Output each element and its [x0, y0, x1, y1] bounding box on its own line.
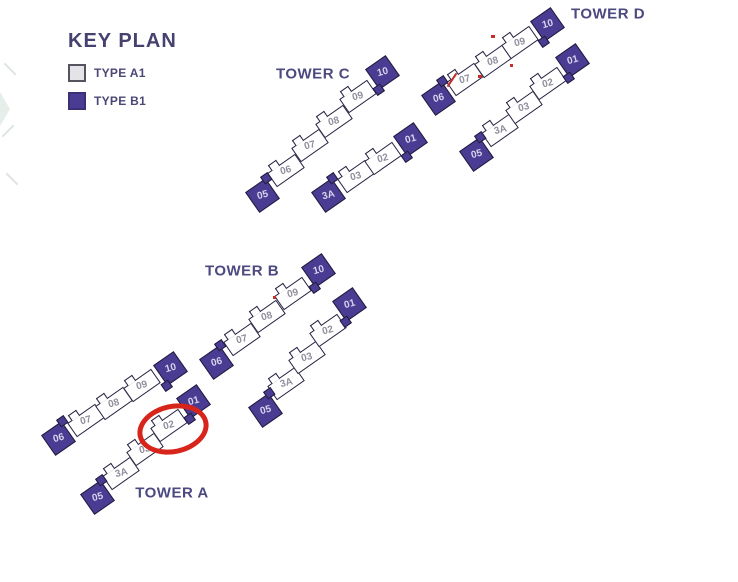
unit-number: 3A [114, 467, 129, 480]
legend-item-label: TYPE B1 [94, 94, 146, 108]
unit-number: 08 [260, 310, 273, 323]
unit-number: 09 [135, 379, 148, 392]
unit-number: 02 [541, 77, 554, 90]
unit-number: 01 [404, 133, 417, 146]
unit-number: 07 [303, 140, 316, 153]
unit-number: 06 [209, 356, 222, 369]
unit-number: 3A [493, 124, 508, 137]
unit-number: 06 [279, 164, 292, 177]
unit-number: 03 [349, 170, 362, 183]
legend-item-label: TYPE A1 [94, 66, 146, 80]
unit-number: 10 [311, 264, 324, 277]
type-b1-swatch [68, 92, 86, 110]
unit-number: 05 [255, 189, 268, 202]
unit-number: 08 [107, 397, 120, 410]
unit-number: 01 [565, 54, 578, 67]
tower-b-label: TOWER B [205, 263, 279, 280]
key-plan-canvas: KEY PLAN TYPE A1 TYPE B1 TOWER A06070809… [0, 0, 738, 582]
unit-number: 10 [541, 18, 554, 31]
legend: KEY PLAN TYPE A1 TYPE B1 [68, 30, 177, 120]
unit-number: 08 [327, 115, 340, 128]
red-speck [510, 64, 513, 67]
unit-number: 3A [321, 189, 336, 202]
unit-number: 06 [51, 432, 64, 445]
unit-number: 10 [375, 66, 388, 79]
tower-c-label: TOWER C [276, 66, 350, 83]
unit-number: 05 [469, 148, 482, 161]
unit-number: 08 [486, 55, 499, 68]
unit-number: 03 [517, 101, 530, 114]
type-a1-swatch [68, 64, 86, 82]
unit-number: 09 [513, 36, 526, 49]
tower-c-unit-09[interactable]: 09 [339, 80, 377, 113]
legend-item-type-a1: TYPE A1 [68, 64, 177, 82]
tower-d-label: TOWER D [571, 6, 645, 23]
unit-number: 02 [376, 152, 389, 165]
legend-title: KEY PLAN [68, 30, 177, 53]
unit-number: 07 [79, 414, 92, 427]
unit-number: 09 [351, 90, 364, 103]
unit-number: 02 [321, 324, 334, 337]
tower-d-unit-09[interactable]: 09 [501, 26, 539, 59]
unit-number: 3A [279, 377, 294, 390]
tower-b-unit-09[interactable]: 09 [274, 276, 312, 309]
red-speck [273, 296, 276, 299]
unit-number: 07 [235, 333, 248, 346]
unit-number: 07 [459, 73, 472, 86]
unit-number: 01 [342, 298, 355, 311]
tower-a-label: TOWER A [135, 485, 209, 502]
edge-artifact-line [2, 125, 15, 138]
tower-c-unit-02[interactable]: 02 [364, 141, 402, 174]
edge-artifact [0, 60, 26, 220]
edge-artifact-line [6, 173, 19, 186]
unit-number: 03 [300, 351, 313, 364]
edge-artifact-triangle [0, 92, 10, 126]
legend-item-type-b1: TYPE B1 [68, 92, 177, 110]
edge-artifact-line [4, 63, 17, 76]
unit-number: 05 [90, 491, 103, 504]
unit-number: 09 [286, 287, 299, 300]
red-speck [491, 35, 495, 38]
tower-d-unit-02[interactable]: 02 [529, 67, 567, 100]
unit-number: 10 [163, 362, 176, 375]
unit-number: 05 [258, 404, 271, 417]
unit-number: 06 [431, 92, 444, 105]
tower-a-unit-09[interactable]: 09 [123, 369, 161, 402]
red-speck [478, 75, 482, 78]
